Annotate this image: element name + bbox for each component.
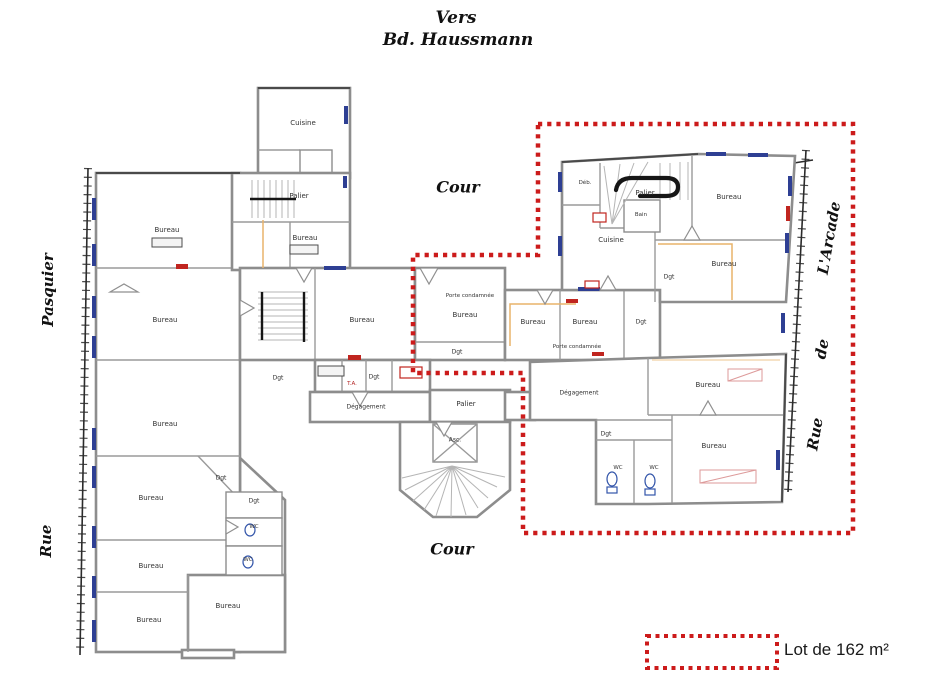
room-label-bureau: Bureau [702, 442, 727, 450]
room-label-bureau: Bureau [139, 494, 164, 502]
room-label-cuisine: Cuisine [598, 236, 624, 244]
label-cour-top: Cour [436, 178, 479, 197]
room-label-dgt: Dgt [273, 375, 284, 382]
room-label-dgt: Dgt [636, 319, 647, 326]
room-label-dgt: Dgt [369, 374, 380, 381]
room-label-bureau: Bureau [573, 318, 598, 326]
room-label-palier: Palier [289, 192, 308, 200]
room-label-d-gagement: Dégagement [347, 404, 386, 411]
room-label-bureau: Bureau [139, 562, 164, 570]
room-label-dgt: Dgt [601, 431, 612, 438]
room-label-dgt: Dgt [452, 349, 463, 356]
room-label-dgt: Dgt [664, 274, 675, 281]
room-label-bureau: Bureau [153, 316, 178, 324]
room-label-bureau: Bureau [137, 616, 162, 624]
building-top-block [232, 88, 350, 270]
label-pasquier: Pasquier [39, 253, 57, 327]
room-label-cuisine: Cuisine [290, 119, 316, 127]
legend-lot-label: Lot de 162 m² [784, 640, 889, 660]
label-de: de [811, 338, 832, 361]
label-bd-haussmann: Bd. Haussmann [383, 30, 533, 50]
room-label-d-b-: Déb. [579, 180, 592, 186]
room-label-bureau: Bureau [155, 226, 180, 234]
room-label-wc: WC [249, 524, 258, 530]
room-label-bain: Bain [635, 212, 647, 218]
room-label-palier: Palier [635, 189, 654, 197]
label-cour-bottom: Cour [430, 540, 473, 559]
room-label-porte-condamn-e: Porte condamnée [553, 344, 601, 350]
building-right-upper [562, 154, 795, 302]
room-label-bureau: Bureau [717, 193, 742, 201]
label-vers: Vers [436, 8, 477, 28]
floorplan-svg [0, 0, 929, 679]
label-rue-left: Rue [37, 525, 55, 558]
room-label-asc-: Asc. [449, 437, 461, 444]
room-label-d-gagement: Dégagement [560, 390, 599, 397]
room-label-wc: WC [613, 465, 622, 471]
floorplan-page: Vers Bd. Haussmann Cour Cour Pasquier Ru… [0, 0, 929, 679]
legend-lot-box [647, 636, 777, 668]
room-label-bureau: Bureau [350, 316, 375, 324]
room-label-dgt: Dgt [216, 475, 227, 482]
room-label-bureau: Bureau [216, 602, 241, 610]
room-label-palier: Palier [456, 400, 475, 408]
room-label-bureau: Bureau [521, 318, 546, 326]
building-right-lower [530, 354, 786, 504]
room-label-t-a-: T.A. [347, 381, 357, 387]
room-label-wc: WC [649, 465, 658, 471]
room-label-bureau: Bureau [453, 311, 478, 319]
room-label-porte-condamn-e: Porte condamnée [446, 293, 494, 299]
room-label-bureau: Bureau [153, 420, 178, 428]
room-label-wc: WC [243, 557, 252, 563]
room-label-bureau: Bureau [712, 260, 737, 268]
room-label-dgt: Dgt [249, 498, 260, 505]
room-label-bureau: Bureau [696, 381, 721, 389]
room-label-bureau: Bureau [293, 234, 318, 242]
